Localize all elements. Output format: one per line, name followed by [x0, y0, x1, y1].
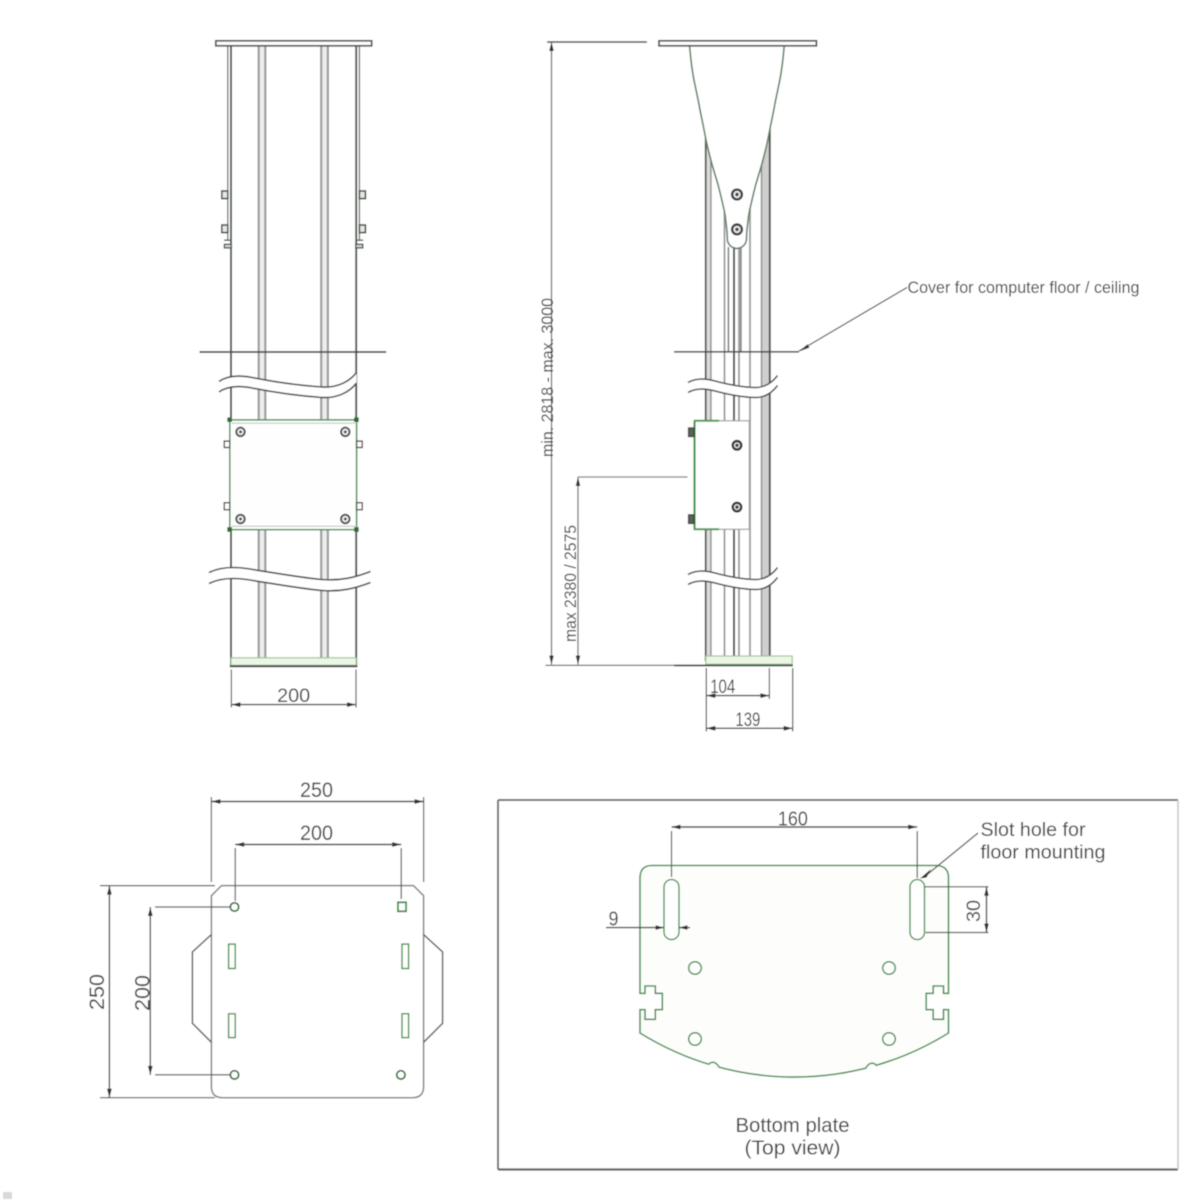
- svg-text:(Top view): (Top view): [745, 1137, 841, 1160]
- svg-text:Bottom plate: Bottom plate: [736, 1114, 850, 1137]
- svg-text:200: 200: [300, 822, 333, 845]
- svg-text:200: 200: [277, 685, 310, 707]
- svg-text:Slot hole for: Slot hole for: [981, 819, 1087, 841]
- svg-text:min. 2818 - max. 3000: min. 2818 - max. 3000: [539, 298, 557, 457]
- svg-text:floor mounting: floor mounting: [981, 842, 1106, 864]
- svg-text:104: 104: [710, 677, 735, 698]
- svg-text:30: 30: [964, 900, 985, 922]
- svg-text:max 2380 / 2575: max 2380 / 2575: [562, 525, 580, 642]
- svg-text:250: 250: [300, 779, 333, 802]
- svg-text:200: 200: [131, 975, 155, 1011]
- svg-text:160: 160: [778, 809, 808, 831]
- svg-text:139: 139: [735, 710, 760, 731]
- svg-text:9: 9: [609, 909, 619, 931]
- svg-text:250: 250: [85, 974, 109, 1010]
- svg-text:Cover for computer floor / cei: Cover for computer floor / ceiling: [908, 279, 1140, 297]
